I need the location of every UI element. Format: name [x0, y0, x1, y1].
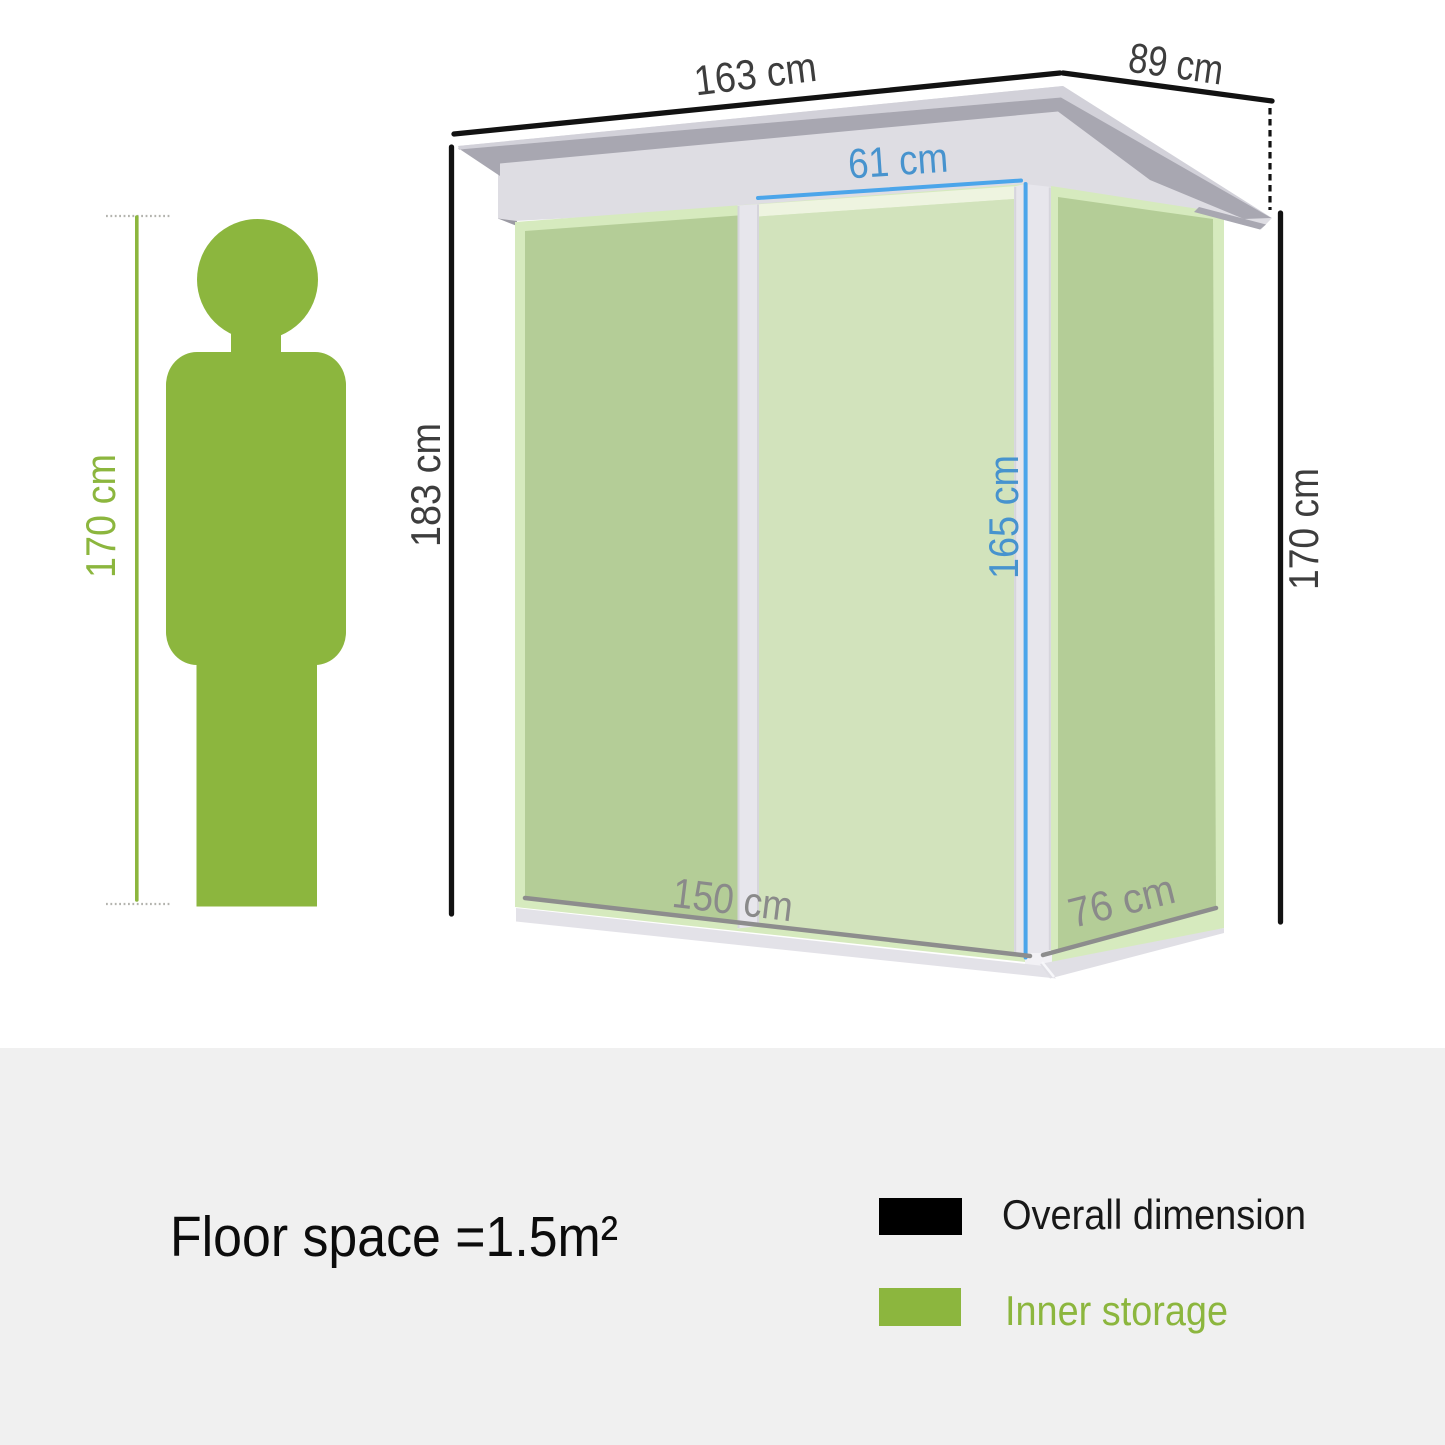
svg-text:165 cm: 165 cm: [980, 455, 1027, 579]
svg-text:183 cm: 183 cm: [402, 423, 449, 547]
svg-text:170 cm: 170 cm: [1280, 468, 1327, 590]
svg-text:Floor space =1.5m²: Floor space =1.5m²: [170, 1205, 618, 1269]
svg-text:Inner storage: Inner storage: [1005, 1287, 1228, 1334]
svg-text:61 cm: 61 cm: [846, 134, 949, 188]
svg-text:Overall dimension: Overall dimension: [1002, 1191, 1306, 1238]
svg-text:170 cm: 170 cm: [77, 454, 124, 578]
